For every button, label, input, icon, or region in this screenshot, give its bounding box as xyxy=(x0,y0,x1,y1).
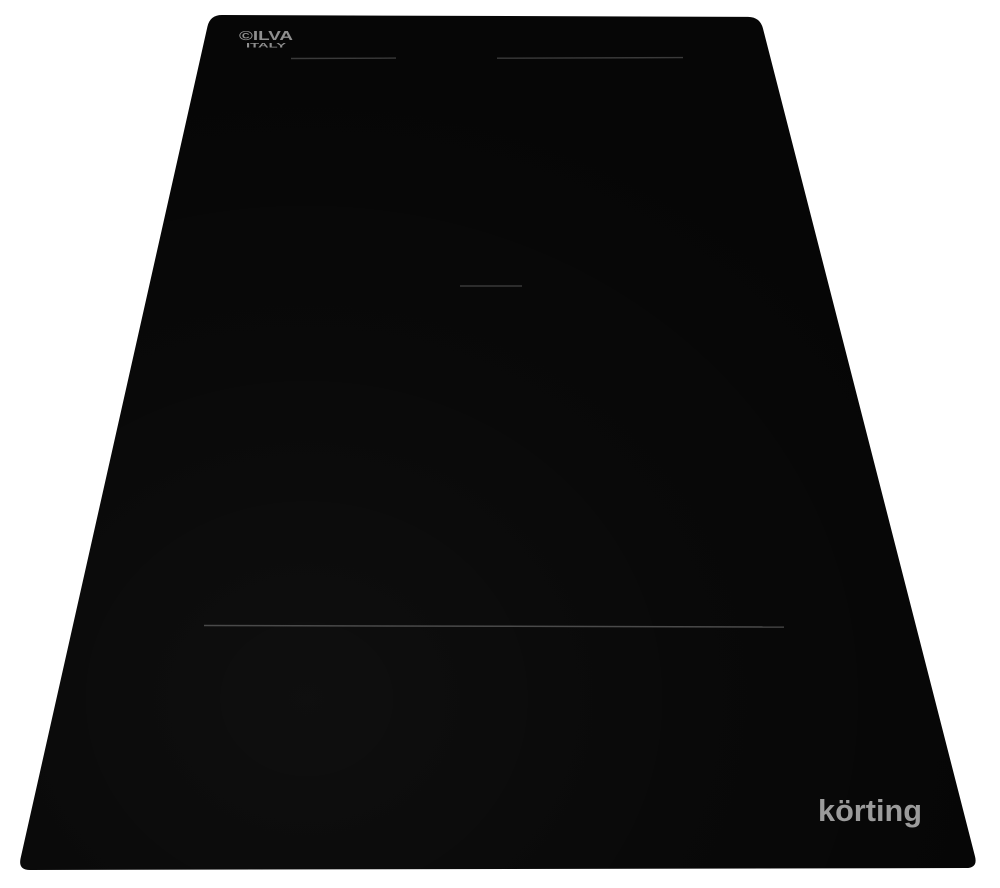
glass-manufacturer-logo: ©ILVA ITALY xyxy=(239,28,294,50)
product-photo-stage: ©ILVA ITALY körting xyxy=(0,0,1000,888)
zone-line-top-right xyxy=(497,58,683,59)
brand-logo: körting xyxy=(818,793,922,828)
glass-logo-country: ITALY xyxy=(246,43,287,50)
surface-sheen xyxy=(20,15,975,870)
glass-logo-name: ©ILVA xyxy=(239,28,294,43)
cooktop-photo: ©ILVA ITALY körting xyxy=(0,0,1000,888)
